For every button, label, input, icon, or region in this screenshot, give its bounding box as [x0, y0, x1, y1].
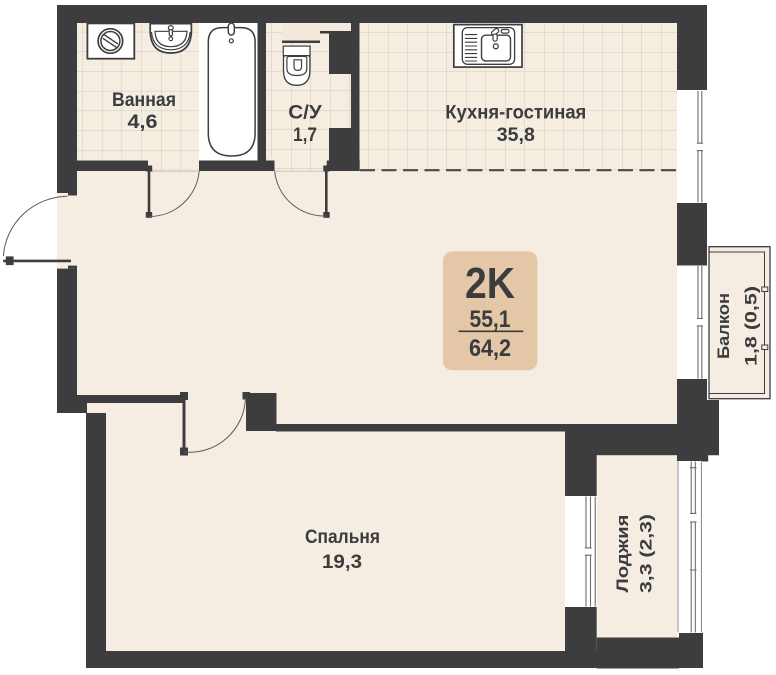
svg-text:Балкон: Балкон	[714, 293, 733, 359]
svg-text:55,1: 55,1	[470, 306, 511, 333]
svg-text:35,8: 35,8	[497, 124, 535, 146]
svg-text:Лоджия: Лоджия	[613, 515, 632, 593]
svg-text:С/У: С/У	[288, 102, 322, 124]
svg-text:3,3 (2,3): 3,3 (2,3)	[637, 514, 656, 593]
svg-text:Кухня-гостиная: Кухня-гостиная	[445, 102, 586, 124]
svg-text:19,3: 19,3	[322, 551, 362, 573]
svg-text:64,2: 64,2	[469, 335, 511, 362]
svg-text:4,6: 4,6	[128, 111, 158, 133]
svg-text:1,7: 1,7	[293, 124, 317, 146]
svg-text:2K: 2K	[465, 259, 515, 308]
svg-text:Спальня: Спальня	[305, 526, 380, 548]
svg-text:Ванная: Ванная	[112, 89, 176, 111]
svg-text:1,8 (0,5): 1,8 (0,5)	[742, 286, 761, 366]
